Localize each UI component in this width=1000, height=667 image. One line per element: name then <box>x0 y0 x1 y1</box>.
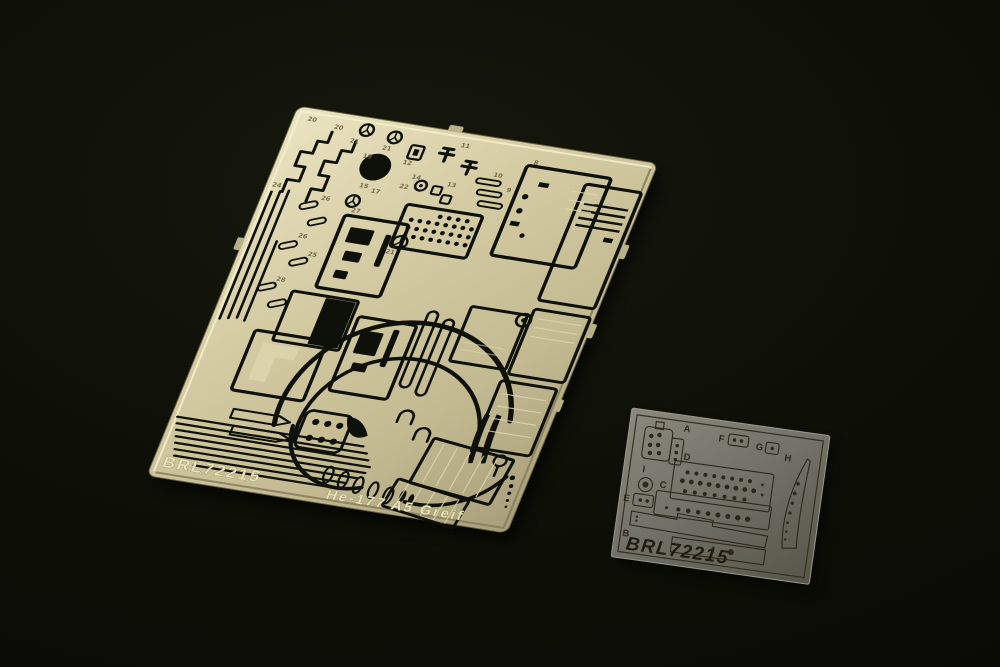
instrument-film-sheet: A F G H D I C E B BRL72215 <box>611 408 830 584</box>
product-photo: 20 20 21 21 19 12 11 14 13 10 9 8 15 17 … <box>0 0 1000 667</box>
section-label-g: G <box>755 442 764 454</box>
photo-scene: 20 20 21 21 19 12 11 14 13 10 9 8 15 17 … <box>0 0 1000 667</box>
large-photoetch-fret: 20 20 21 21 19 12 11 14 13 10 9 8 15 17 … <box>139 100 665 538</box>
